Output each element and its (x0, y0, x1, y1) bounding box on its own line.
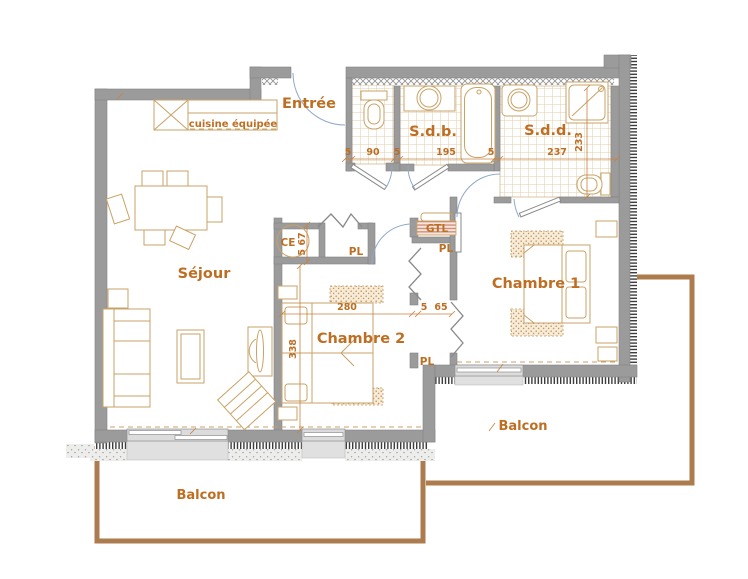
dim-sdd-depth: 233 (574, 132, 585, 152)
north-wall-sejour (95, 89, 261, 100)
closet-bottom-wall (274, 257, 375, 264)
north-wall-baths (346, 67, 625, 78)
chair-right (207, 197, 222, 222)
tv-unit (248, 327, 272, 376)
chair-top-2 (167, 171, 188, 186)
bay-pane-1 (129, 431, 181, 435)
ch1-door-arc (457, 174, 500, 217)
pl-mid-bifold (409, 248, 421, 300)
stipple-2 (228, 449, 302, 461)
side-table (108, 289, 128, 308)
ch2-door-arc (372, 224, 412, 264)
ch1-nightstand-2 (596, 327, 617, 343)
pl-low-bifold (451, 302, 463, 357)
dim-closet-width: 65 (434, 302, 447, 313)
stipple-0 (66, 444, 94, 458)
wc-door-leaf (351, 164, 387, 189)
ch2-pane (304, 433, 343, 437)
sdd-door-stub-l (494, 197, 511, 203)
tv-cabinet (248, 327, 272, 376)
ch1-nightstand-1 (596, 221, 617, 237)
entry-stub-wall (250, 67, 291, 78)
dim-ch2-width: 280 (337, 302, 357, 313)
ch2-window-sill (302, 441, 345, 458)
ch2-nightstand-1 (278, 286, 297, 299)
pl-hall-label: PL (349, 246, 364, 258)
sdb-sink-icon (404, 86, 455, 111)
chair-top-1 (142, 171, 163, 186)
east-wall-hatch (630, 55, 637, 384)
balcon-south-label: Balcon (176, 488, 225, 503)
dim-wc-wall-l: 5 (345, 147, 352, 158)
dim-ce-depth: 5 67 (297, 232, 308, 255)
stipple-3 (345, 449, 435, 461)
chambre1-label: Chambre 1 (492, 276, 580, 292)
wc-toilet-icon (361, 91, 387, 129)
col-west-3 (410, 353, 418, 368)
ce-label: CE (281, 237, 296, 249)
chambre2-label: Chambre 2 (317, 331, 405, 347)
ch2-nightstand-2 (278, 407, 297, 420)
sdd-label: S.d.d. (524, 123, 572, 139)
dim-sdb-sdd-wall: 5 (488, 147, 495, 158)
pl-mid-label: PL (439, 243, 454, 255)
sdd-door-arc (514, 199, 519, 217)
dim-closet-wall: 5 (421, 302, 428, 313)
ch2-rug-top (330, 286, 383, 303)
ch2-pillow-1 (285, 307, 307, 324)
sdb-door-stub-r (448, 164, 494, 171)
ch1-hatch-1 (435, 377, 455, 384)
entry-insulation (262, 78, 278, 85)
east-wall (619, 55, 630, 382)
south-hatch-2 (228, 442, 302, 449)
sofa-body (103, 309, 150, 407)
chair-bottom-1 (144, 230, 165, 245)
sofa (103, 309, 150, 407)
ch1-bench (598, 347, 617, 361)
floor-plan: Entrée S.d.b. S.d.d. Séjour Chambre 1 Ch… (0, 0, 748, 579)
floor-plan-drawing: Entrée S.d.b. S.d.d. Séjour Chambre 1 Ch… (0, 0, 748, 579)
sdd-door-leaf (519, 197, 560, 217)
dim-wc-width: 90 (366, 147, 380, 158)
bay-pane-2 (175, 436, 227, 440)
stipple-1 (90, 449, 127, 461)
dim-sdd-width: 237 (547, 147, 567, 158)
dim-wc-wall-r: 5 (394, 147, 401, 158)
ch1-pane (457, 368, 521, 372)
south-step-wall (423, 365, 435, 442)
south-hatch-3 (345, 442, 428, 449)
armchair (218, 372, 276, 430)
sdd-door-stub-r (560, 197, 619, 203)
pl-east-wall (368, 223, 375, 264)
chair-left (106, 194, 129, 224)
sejour-furniture (103, 171, 276, 430)
armchair-body (218, 372, 276, 430)
sdd-east-wall (611, 86, 619, 197)
sdd-toilet-icon (577, 173, 610, 195)
sejour-ch2-wall (274, 218, 282, 432)
pl-low-label: PL (420, 356, 435, 368)
balcon-east-label: Balcon (498, 419, 547, 434)
ch1-window-sill (455, 376, 523, 385)
sdb-label: S.d.b. (409, 124, 457, 140)
dining-table (135, 186, 207, 230)
wc-toilet-tank (361, 91, 387, 100)
wc-door-stub-r (386, 163, 400, 171)
kitchen-label: cuisine équipée (189, 118, 278, 130)
sejour-label: Séjour (178, 266, 232, 282)
sdb-door-stub-l (400, 164, 414, 171)
gtl-label: GTL (426, 223, 449, 235)
entree-label: Entrée (282, 96, 336, 112)
ch2-pillow-2 (285, 384, 307, 401)
coffee-table (177, 330, 204, 383)
gtl-cap (421, 213, 452, 221)
sdb-door-leaf (413, 164, 450, 190)
dim-ch2-depth: 338 (288, 339, 299, 359)
dining-table-set (106, 171, 222, 249)
bay-sill (127, 441, 228, 460)
dim-sdb-width: 195 (436, 147, 456, 158)
sdd-sink-icon (502, 85, 537, 116)
